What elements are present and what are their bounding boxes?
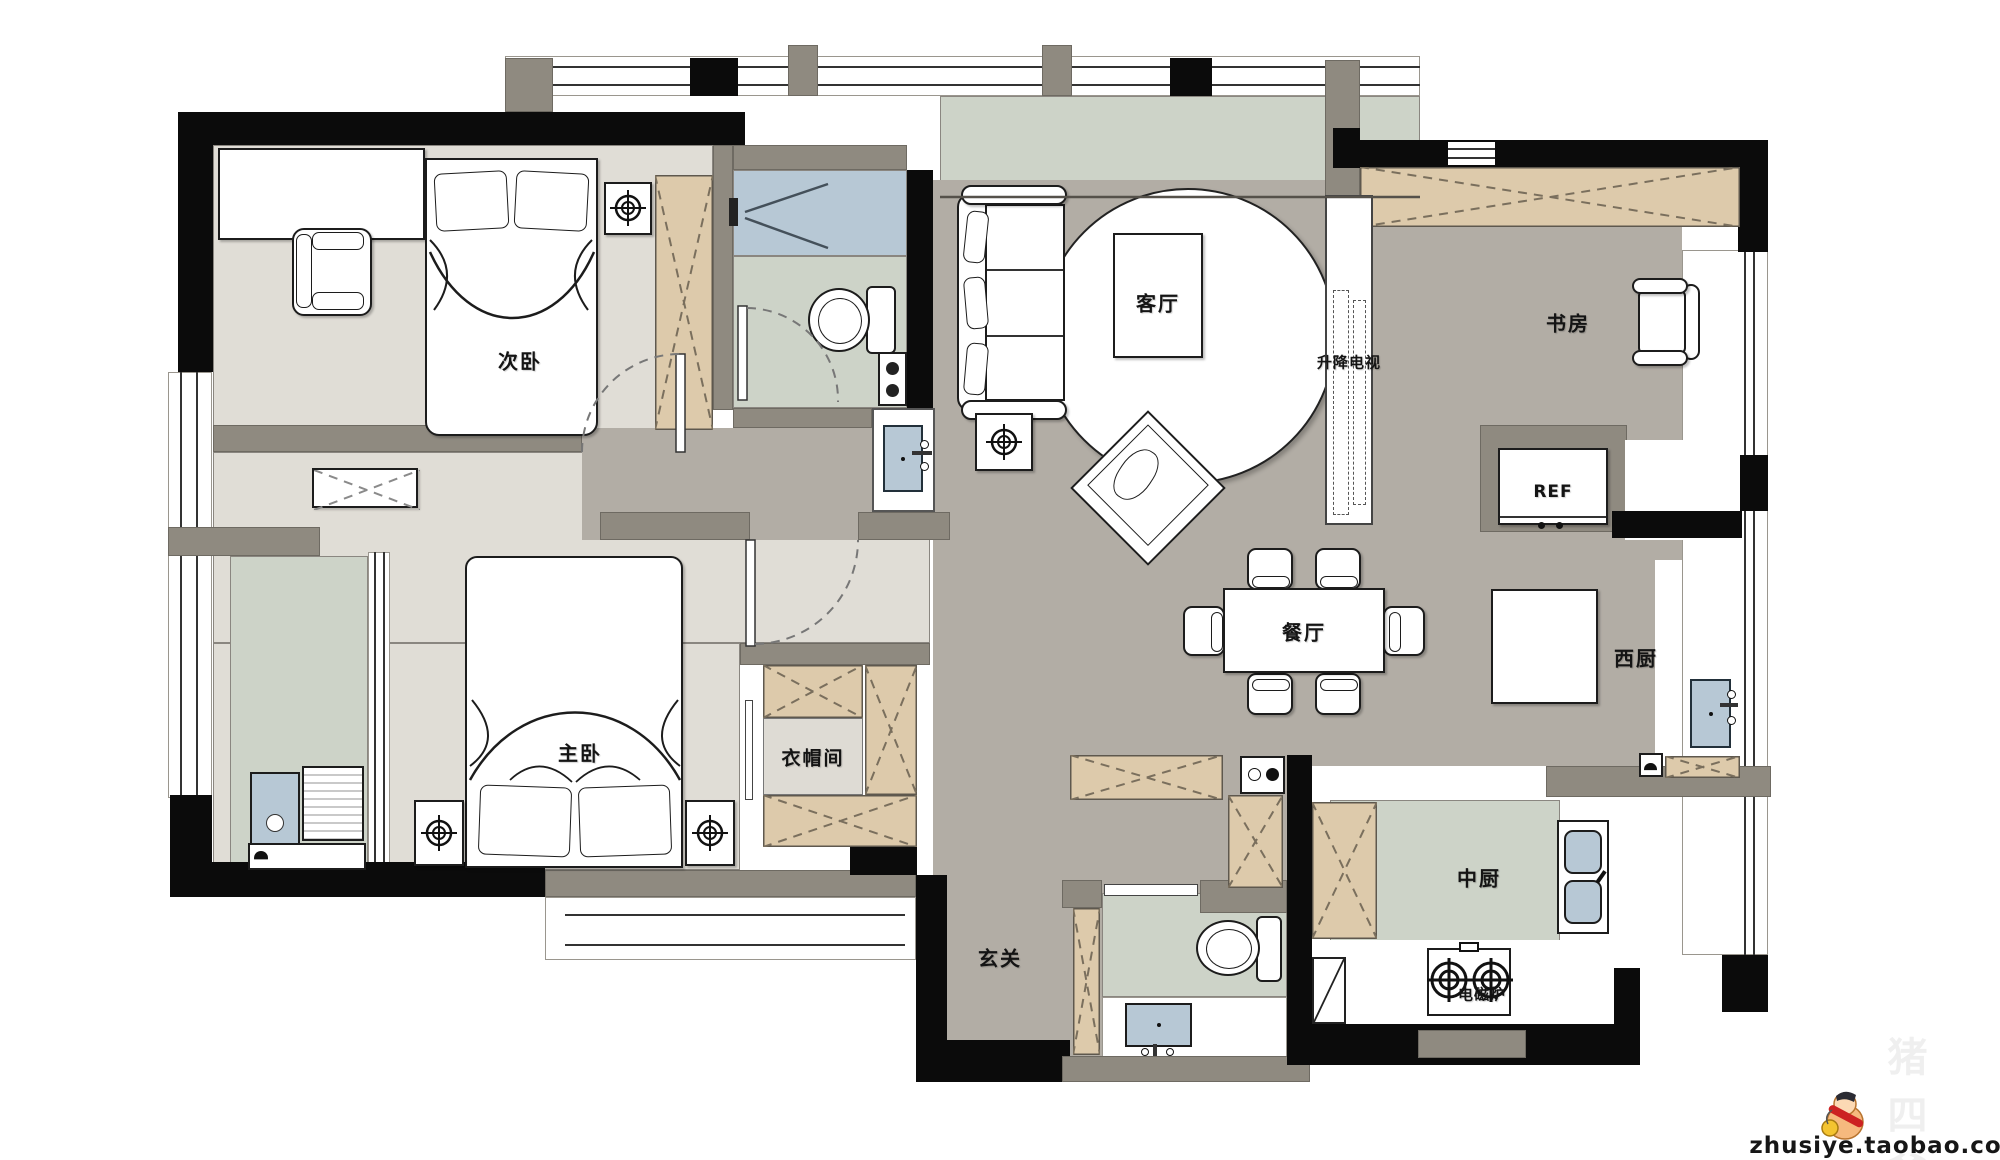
- induction-cooker-label: 电磁炉: [1458, 984, 1506, 1005]
- cloakroom-wardrobe-bottom: [763, 795, 917, 847]
- study-top-cabinet: [1360, 167, 1740, 227]
- dining-chair: [1315, 548, 1361, 590]
- living-room-sofa: [957, 185, 1073, 420]
- dining-room-label: 餐厅: [1282, 617, 1326, 646]
- fridge-label: REF: [1533, 482, 1572, 502]
- living-room-label: 客厅: [1136, 288, 1180, 317]
- secondary-bedroom-wardrobe: [655, 175, 713, 430]
- toilet-icon: [1194, 914, 1284, 984]
- study-chair: [1630, 278, 1702, 368]
- cloakroom-label: 衣帽间: [781, 744, 844, 771]
- west-kitchen-island: [1491, 589, 1598, 704]
- secondary-bedroom-bed: [425, 158, 598, 436]
- toilet-icon: [808, 284, 900, 358]
- floor-plan: 次卧 客厅 升降电视: [0, 0, 2000, 1160]
- dining-chair: [1315, 673, 1361, 715]
- plumbing-column: [1639, 753, 1663, 777]
- dining-chair: [1247, 548, 1293, 590]
- kitchen-door: [1312, 957, 1346, 1024]
- tv-lift-label: 升降电视: [1317, 352, 1381, 373]
- study-label: 书房: [1546, 308, 1590, 337]
- bath1-vanity: [878, 352, 907, 406]
- master-bay-window: [545, 897, 916, 960]
- watermark-url: zhusiye.taobao.com: [1749, 1133, 2000, 1159]
- bath2-sink: [1125, 1003, 1192, 1047]
- kitchen-tall-cabinet: [1312, 802, 1377, 939]
- foyer-tall-cabinet: [1228, 795, 1283, 888]
- master-bedroom-label: 主卧: [558, 738, 602, 767]
- cloakroom-wardrobe-top: [763, 665, 863, 718]
- chinese-kitchen-label: 中厨: [1457, 863, 1501, 892]
- bath2-side-cabinet: [1073, 908, 1100, 1055]
- foyer-counter: [1240, 756, 1285, 794]
- dining-chair: [1183, 606, 1225, 656]
- laundry-counter: [248, 843, 366, 870]
- cloakroom-door-track: [745, 700, 753, 800]
- shower-door-handle: [729, 198, 738, 226]
- dining-chair: [1383, 606, 1425, 656]
- west-kitchen-label: 西厨: [1614, 643, 1658, 672]
- top-window-band: [505, 56, 1420, 96]
- entry-door: [883, 425, 923, 492]
- master-dresser: [312, 468, 418, 508]
- secondary-bedroom-label: 次卧: [498, 346, 542, 375]
- dining-chair: [1247, 673, 1293, 715]
- master-balcony-window: [368, 552, 390, 868]
- washing-machine: [302, 766, 364, 841]
- master-bed: [465, 556, 683, 868]
- foyer-label: 玄关: [978, 943, 1022, 972]
- secondary-bedroom-armchair: [292, 228, 372, 316]
- induction-cooktop: [1427, 948, 1511, 1016]
- bath1-shower-floor: [733, 170, 907, 256]
- kitchen-sink: [1557, 820, 1609, 934]
- dining-sideboard: [1070, 755, 1223, 800]
- secondary-bedroom-desk: [218, 148, 425, 240]
- balcony-door: [1690, 679, 1731, 748]
- tv-lift-dashes: [1333, 290, 1349, 515]
- laundry-sink: [250, 772, 300, 845]
- cloakroom-wardrobe-right: [865, 665, 917, 795]
- left-bay-window: [168, 372, 212, 798]
- east-balcony-cabinet: [1665, 756, 1740, 778]
- bath2-sliding-door: [1104, 884, 1198, 896]
